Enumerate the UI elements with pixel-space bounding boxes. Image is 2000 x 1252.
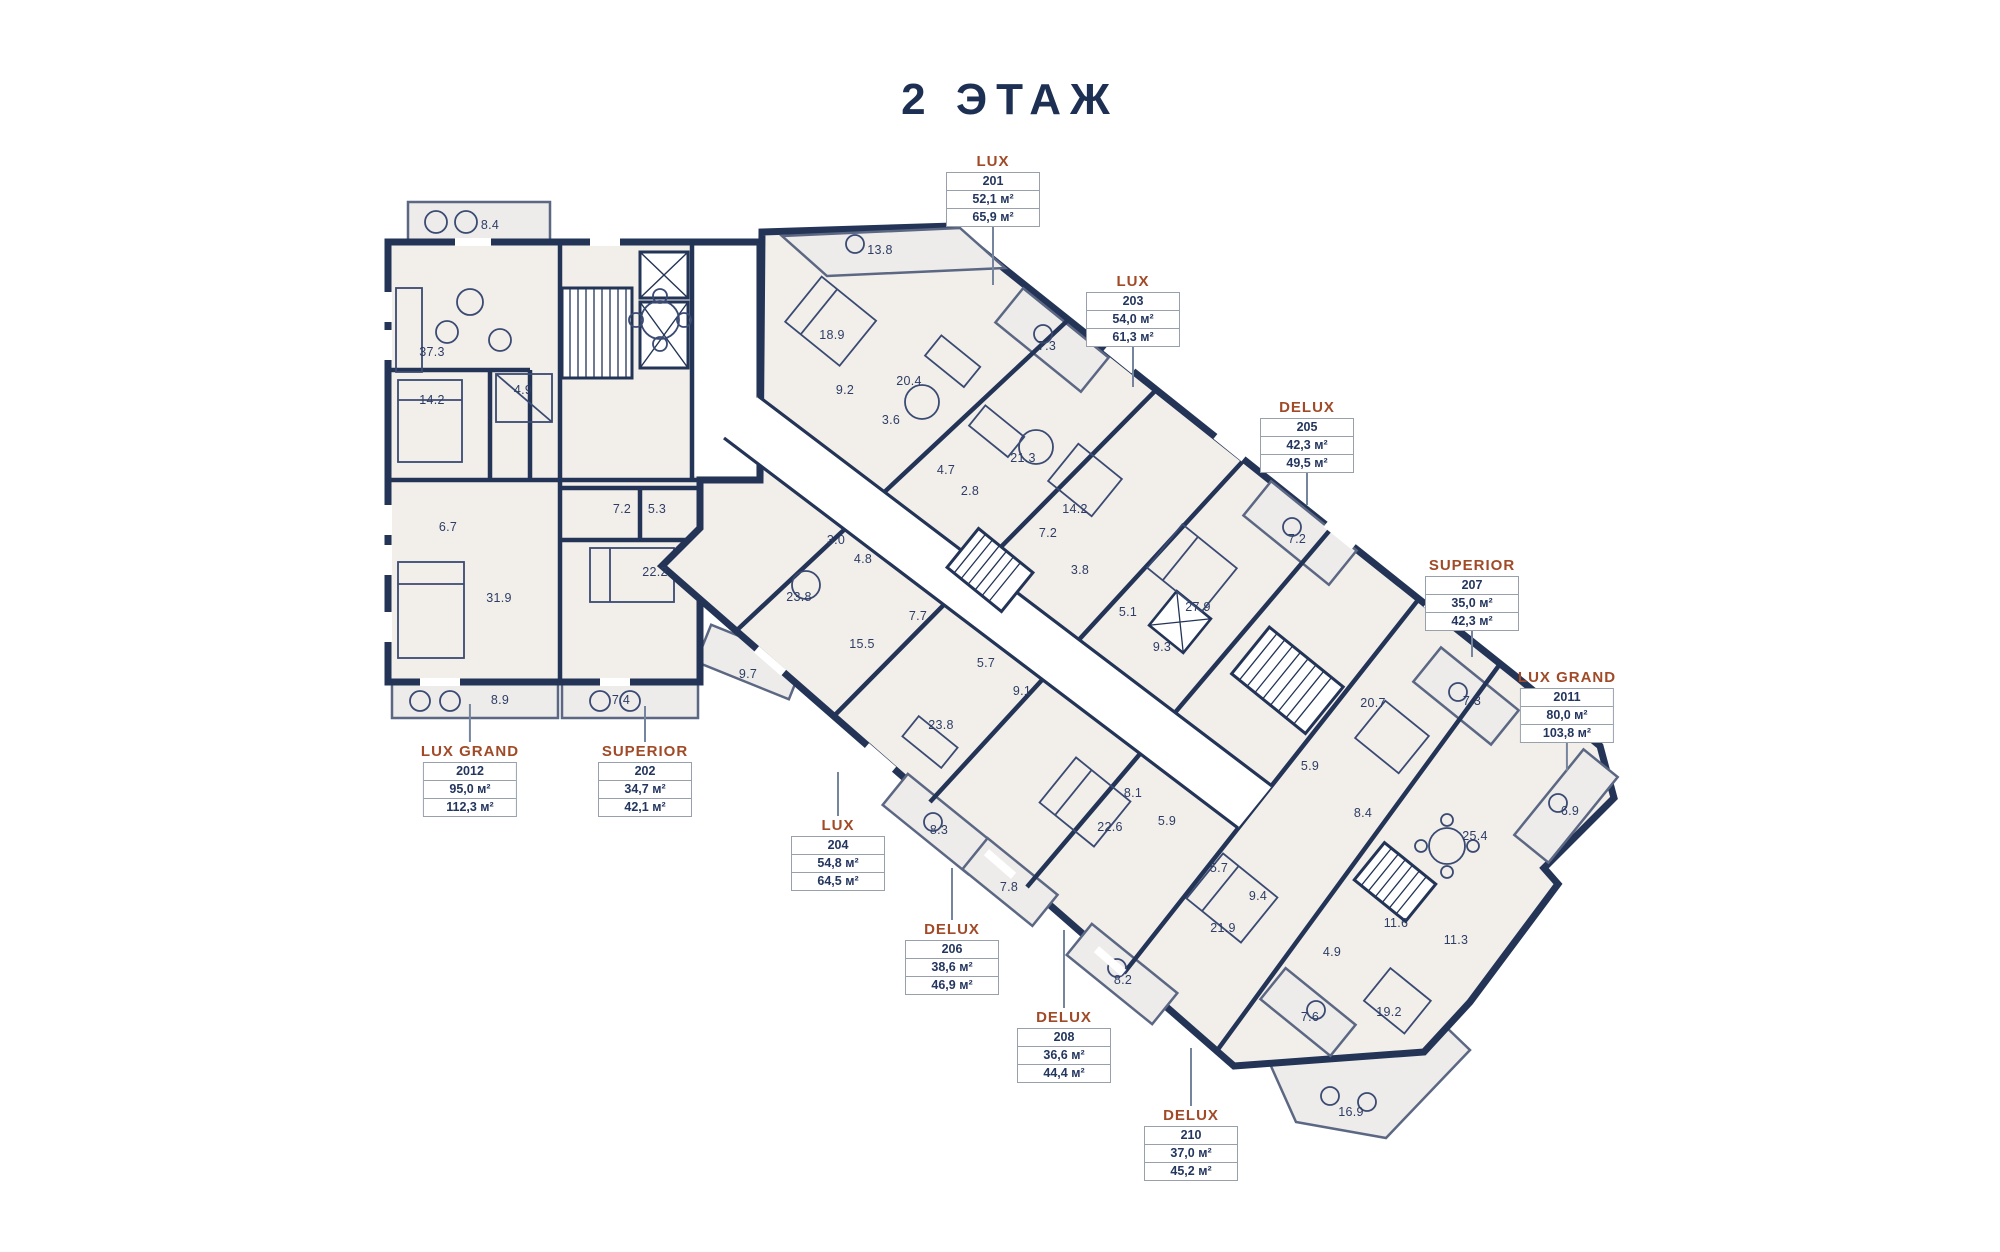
room-area-label: 16.9: [1338, 1105, 1364, 1119]
room-area-label: 7.3: [1038, 339, 1056, 353]
leader-line: [951, 868, 953, 920]
room-area-label: 25.4: [1462, 829, 1488, 843]
unit-label-207: SUPERIOR20735,0 м²42,3 м²: [1425, 556, 1519, 657]
room-area-label: 4.7: [937, 463, 955, 477]
unit-info-box: 201180,0 м²103,8 м²: [1520, 688, 1614, 743]
unit-area-living: 35,0 м²: [1426, 594, 1518, 612]
unit-info-box: 20542,3 м²49,5 м²: [1260, 418, 1354, 473]
room-area-label: 7.8: [1000, 880, 1018, 894]
unit-type: LUX: [822, 817, 855, 834]
unit-label-203: LUX20354,0 м²61,3 м²: [1086, 272, 1180, 387]
unit-number: 207: [1426, 577, 1518, 594]
room-area-label: 6.7: [439, 520, 457, 534]
unit-number: 201: [947, 173, 1039, 190]
unit-label-206: DELUX20638,6 м²46,9 м²: [905, 868, 999, 995]
unit-area-total: 42,3 м²: [1426, 612, 1518, 630]
unit-area-total: 44,4 м²: [1018, 1064, 1110, 1082]
unit-area-total: 45,2 м²: [1145, 1162, 1237, 1180]
unit-type: DELUX: [1036, 1009, 1092, 1026]
unit-label-2011: LUX GRAND201180,0 м²103,8 м²: [1518, 668, 1616, 771]
unit-area-living: 42,3 м²: [1261, 436, 1353, 454]
unit-number: 205: [1261, 419, 1353, 436]
unit-info-box: 21037,0 м²45,2 м²: [1144, 1126, 1238, 1181]
room-area-label: 5.9: [1158, 814, 1176, 828]
unit-type: DELUX: [1279, 399, 1335, 416]
room-area-label: 9.4: [1249, 889, 1267, 903]
room-area-label: 27.9: [1185, 600, 1211, 614]
leader-line: [1063, 930, 1065, 1008]
leader-line: [837, 772, 839, 816]
room-area-label: 21.3: [1010, 451, 1036, 465]
room-area-label: 8.1: [1124, 786, 1142, 800]
leader-line: [644, 706, 646, 742]
room-area-label: 21.9: [1210, 921, 1236, 935]
room-area-label: 9.7: [739, 667, 757, 681]
room-area-label: 5.3: [648, 502, 666, 516]
room-area-label: 9.3: [1153, 640, 1171, 654]
leader-line: [1190, 1048, 1192, 1106]
unit-area-total: 46,9 м²: [906, 976, 998, 994]
unit-info-box: 20234,7 м²42,1 м²: [598, 762, 692, 817]
unit-area-total: 42,1 м²: [599, 798, 691, 816]
staircase: [562, 288, 632, 378]
unit-type: SUPERIOR: [1429, 557, 1515, 574]
unit-area-living: 95,0 м²: [424, 780, 516, 798]
room-area-label: 14.2: [419, 393, 445, 407]
room-area-label: 22.2: [642, 565, 668, 579]
room-area-label: 8.4: [481, 218, 499, 232]
unit-area-living: 52,1 м²: [947, 190, 1039, 208]
unit-number: 202: [599, 763, 691, 780]
unit-area-living: 36,6 м²: [1018, 1046, 1110, 1064]
room-area-label: 7.2: [1288, 532, 1306, 546]
unit-type: LUX GRAND: [1518, 669, 1616, 686]
unit-number: 2012: [424, 763, 516, 780]
left-wing: [384, 202, 804, 718]
floor-plan-page: 2 ЭТАЖ 8.437.314.24.96.731.97.25.322.28.…: [0, 0, 2000, 1252]
room-area-label: 20.4: [896, 374, 922, 388]
page-title: 2 ЭТАЖ: [901, 75, 1119, 125]
unit-type: LUX: [977, 153, 1010, 170]
unit-area-total: 112,3 м²: [424, 798, 516, 816]
leader-line: [1566, 743, 1568, 771]
room-area-label: 37.3: [419, 345, 445, 359]
room-area-label: 9.1: [1013, 684, 1031, 698]
room-area-label: 8.2: [1114, 973, 1132, 987]
room-area-label: 15.5: [849, 637, 875, 651]
room-area-label: 8.4: [1354, 806, 1372, 820]
room-area-label: 11.6: [1384, 916, 1409, 930]
unit-type: LUX GRAND: [421, 743, 519, 760]
unit-label-208: DELUX20836,6 м²44,4 м²: [1017, 930, 1111, 1083]
unit-info-box: 20735,0 м²42,3 м²: [1425, 576, 1519, 631]
leader-line: [992, 227, 994, 285]
unit-area-living: 54,0 м²: [1087, 310, 1179, 328]
unit-type: LUX: [1117, 273, 1150, 290]
leader-line: [1132, 347, 1134, 387]
room-area-label: 22.6: [1097, 820, 1123, 834]
unit-label-205: DELUX20542,3 м²49,5 м²: [1260, 398, 1354, 505]
room-area-label: 4.9: [514, 383, 532, 397]
unit-area-living: 54,8 м²: [792, 854, 884, 872]
room-area-label: 5.1: [1119, 605, 1137, 619]
room-area-label: 4.8: [854, 552, 872, 566]
room-area-label: 3.0: [827, 533, 845, 547]
room-area-label: 20.7: [1360, 696, 1386, 710]
unit-type: SUPERIOR: [602, 743, 688, 760]
unit-label-201: LUX20152,1 м²65,9 м²: [946, 152, 1040, 285]
unit-label-210: DELUX21037,0 м²45,2 м²: [1144, 1048, 1238, 1181]
balcony: [408, 202, 550, 242]
leader-line: [1471, 631, 1473, 657]
room-area-label: 14.2: [1062, 502, 1088, 516]
room-area-label: 13.8: [867, 243, 893, 257]
room-area-label: 7.4: [612, 693, 630, 707]
room-area-label: 5.7: [977, 656, 995, 670]
unit-area-total: 103,8 м²: [1521, 724, 1613, 742]
unit-number: 208: [1018, 1029, 1110, 1046]
room-area-label: 23.8: [786, 590, 812, 604]
unit-type: DELUX: [924, 921, 980, 938]
room-area-label: 5.7: [1210, 861, 1228, 875]
unit-label-2012: LUX GRAND201295,0 м²112,3 м²: [421, 704, 519, 817]
unit-label-202: SUPERIOR20234,7 м²42,1 м²: [598, 706, 692, 817]
unit-area-living: 80,0 м²: [1521, 706, 1613, 724]
unit-area-living: 37,0 м²: [1145, 1144, 1237, 1162]
room-area-label: 9.2: [836, 383, 854, 397]
room-area-label: 23.8: [928, 718, 954, 732]
leader-line: [1306, 473, 1308, 505]
unit-area-living: 38,6 м²: [906, 958, 998, 976]
unit-area-living: 34,7 м²: [599, 780, 691, 798]
unit-number: 206: [906, 941, 998, 958]
room-area-label: 31.9: [486, 591, 512, 605]
room-area-label: 7.6: [1301, 1010, 1319, 1024]
unit-info-box: 20354,0 м²61,3 м²: [1086, 292, 1180, 347]
unit-info-box: 201295,0 м²112,3 м²: [423, 762, 517, 817]
room-area-label: 3.6: [882, 413, 900, 427]
room-area-label: 6.9: [1561, 804, 1579, 818]
room-area-label: 8.3: [930, 823, 948, 837]
unit-area-total: 61,3 м²: [1087, 328, 1179, 346]
unit-label-204: LUX20454,8 м²64,5 м²: [791, 772, 885, 891]
unit-number: 204: [792, 837, 884, 854]
room-area-label: 7.7: [909, 609, 927, 623]
unit-info-box: 20152,1 м²65,9 м²: [946, 172, 1040, 227]
unit-type: DELUX: [1163, 1107, 1219, 1124]
unit-number: 2011: [1521, 689, 1613, 706]
unit-area-total: 65,9 м²: [947, 208, 1039, 226]
room-area-label: 18.9: [819, 328, 845, 342]
unit-area-total: 64,5 м²: [792, 872, 884, 890]
room-area-label: 2.8: [961, 484, 979, 498]
room-area-label: 3.8: [1071, 563, 1089, 577]
unit-number: 210: [1145, 1127, 1237, 1144]
room-area-label: 7.2: [613, 502, 631, 516]
room-area-label: 4.9: [1323, 945, 1341, 959]
unit-number: 203: [1087, 293, 1179, 310]
room-area-label: 5.9: [1301, 759, 1319, 773]
room-area-label: 7.2: [1039, 526, 1057, 540]
room-area-label: 11.3: [1444, 933, 1469, 947]
unit-info-box: 20836,6 м²44,4 м²: [1017, 1028, 1111, 1083]
leader-line: [469, 704, 471, 742]
unit-area-total: 49,5 м²: [1261, 454, 1353, 472]
unit-info-box: 20454,8 м²64,5 м²: [791, 836, 885, 891]
unit-info-box: 20638,6 м²46,9 м²: [905, 940, 999, 995]
room-area-label: 19.2: [1376, 1005, 1402, 1019]
room-area-label: 7.3: [1463, 694, 1481, 708]
